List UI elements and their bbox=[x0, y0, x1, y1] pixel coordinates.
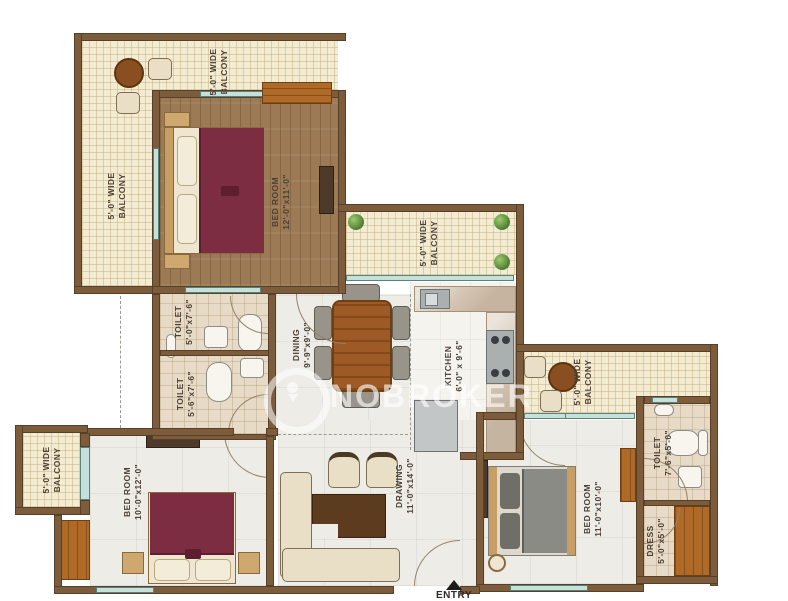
wardrobe-icon bbox=[674, 506, 710, 576]
room-label-dining: DINING9'-9"x9'-0" bbox=[291, 322, 313, 368]
wall bbox=[338, 204, 524, 212]
room-label-toilet-lower: TOILET5'-6"x7'-6" bbox=[175, 371, 197, 417]
nightstand-icon bbox=[164, 112, 190, 127]
room-label-balcony-bottom-left: 5'-0" WIDEBALCONY bbox=[41, 447, 63, 494]
room-label-toilet-right: TOILET7'-6"x5'-0" bbox=[652, 430, 674, 476]
bed-blanket bbox=[522, 469, 567, 553]
pillow bbox=[177, 194, 197, 244]
dashed-line bbox=[120, 296, 121, 428]
blanket-bow bbox=[221, 186, 239, 196]
wall bbox=[516, 344, 718, 352]
plant-icon bbox=[348, 214, 364, 230]
bed-blanket bbox=[150, 493, 234, 555]
plant-icon bbox=[494, 214, 510, 230]
coffee-table-notch bbox=[312, 524, 338, 538]
wall bbox=[516, 204, 524, 460]
washbasin-icon bbox=[240, 358, 264, 378]
wall bbox=[15, 425, 88, 433]
wall bbox=[460, 452, 524, 460]
pillow bbox=[177, 136, 197, 186]
wardrobe-icon bbox=[58, 520, 90, 580]
window bbox=[346, 275, 514, 281]
room-label-bedroom-left: BED ROOM10'-0"x12'-0" bbox=[122, 464, 144, 520]
wall bbox=[644, 500, 710, 506]
wall bbox=[152, 294, 160, 440]
window bbox=[80, 447, 90, 500]
closet-icon bbox=[262, 82, 332, 104]
chair-icon bbox=[116, 92, 140, 114]
bed-icon bbox=[148, 492, 236, 584]
nobroker-logo-pin-dot bbox=[287, 382, 298, 393]
room-label-dress: DRESS5'-0"x5'-0" bbox=[645, 518, 667, 564]
tv-unit-icon bbox=[319, 166, 334, 214]
wc-tank bbox=[698, 430, 708, 456]
wall bbox=[74, 33, 346, 41]
pillow bbox=[154, 559, 190, 581]
window bbox=[565, 413, 635, 419]
hob-icon bbox=[486, 330, 514, 384]
dining-chair-icon bbox=[392, 306, 410, 340]
wall bbox=[82, 428, 234, 436]
burner bbox=[491, 369, 499, 377]
pillow bbox=[500, 473, 520, 509]
dashed-line bbox=[410, 294, 411, 450]
chair-icon bbox=[540, 390, 562, 412]
watermark-text: NOBROKER bbox=[330, 378, 533, 415]
nightstand-icon bbox=[164, 254, 190, 269]
shower-icon bbox=[654, 404, 674, 416]
room-label-balcony-right: 5'-0" WIDEBALCONY bbox=[572, 359, 594, 406]
blanket-bow bbox=[185, 549, 201, 559]
wc-icon bbox=[206, 362, 232, 402]
window bbox=[185, 287, 261, 293]
plant-icon bbox=[494, 254, 510, 270]
wall bbox=[636, 396, 644, 586]
burner bbox=[502, 369, 510, 377]
room-label-bedroom-right: BED ROOM11'-0"x10'-0" bbox=[582, 481, 604, 537]
wall bbox=[80, 433, 90, 447]
pillow bbox=[195, 559, 231, 581]
dashed-line bbox=[278, 434, 408, 435]
window bbox=[96, 587, 154, 593]
nightstand-icon bbox=[238, 552, 260, 574]
window bbox=[510, 585, 588, 591]
wall bbox=[476, 412, 484, 592]
bed-footboard bbox=[567, 467, 575, 555]
entry-arrow-icon bbox=[446, 580, 462, 590]
chair-icon bbox=[148, 58, 172, 80]
window bbox=[652, 397, 678, 403]
wall bbox=[74, 33, 82, 294]
wall bbox=[80, 500, 90, 515]
wall bbox=[15, 507, 88, 515]
lamp-icon bbox=[488, 554, 506, 572]
wall bbox=[160, 350, 276, 356]
pillow bbox=[500, 513, 520, 549]
nightstand-icon bbox=[122, 552, 144, 574]
wall bbox=[266, 436, 274, 586]
washbasin-icon bbox=[204, 326, 228, 348]
sink-icon bbox=[420, 289, 450, 309]
wall bbox=[15, 425, 23, 515]
nobroker-logo-pin-tip bbox=[288, 394, 298, 402]
bed-headboard bbox=[489, 467, 497, 555]
room-label-balcony-top: 5'-0" WIDEBALCONY bbox=[208, 49, 230, 96]
round-table-icon bbox=[114, 58, 144, 88]
window bbox=[153, 148, 159, 240]
room-label-toilet-upper: TOILET5'-0"x7'-6" bbox=[173, 299, 195, 345]
room-label-balcony-left: 5'-0" WIDEBALCONY bbox=[106, 173, 128, 220]
bed-icon bbox=[488, 466, 576, 556]
dresser-icon bbox=[620, 448, 636, 502]
burner bbox=[502, 336, 510, 344]
dining-chair-icon bbox=[392, 346, 410, 380]
burner bbox=[491, 336, 499, 344]
wall bbox=[54, 515, 62, 594]
chair-icon bbox=[524, 356, 546, 378]
wall bbox=[74, 286, 160, 294]
sink-basin bbox=[425, 293, 438, 306]
armchair-icon bbox=[328, 452, 360, 488]
bed-icon bbox=[164, 127, 264, 254]
room-label-bedroom-top: BED ROOM12'-0"x11'-0" bbox=[270, 174, 292, 230]
floor-plan: 5'-0" WIDEBALCONY 5'-0" WIDEBALCONY BED … bbox=[0, 0, 788, 601]
wall bbox=[710, 344, 718, 586]
entry-label: ENTRY bbox=[436, 590, 472, 601]
bed-headboard bbox=[165, 128, 174, 253]
wall bbox=[266, 428, 278, 436]
wall bbox=[636, 576, 718, 584]
room-label-drawing: DRAWING11'-0"x14'-0" bbox=[394, 458, 416, 514]
sofa-icon bbox=[282, 548, 400, 582]
room-label-balcony-middle: 5'-0" WIDEBALCONY bbox=[418, 220, 440, 267]
wall bbox=[338, 90, 346, 294]
